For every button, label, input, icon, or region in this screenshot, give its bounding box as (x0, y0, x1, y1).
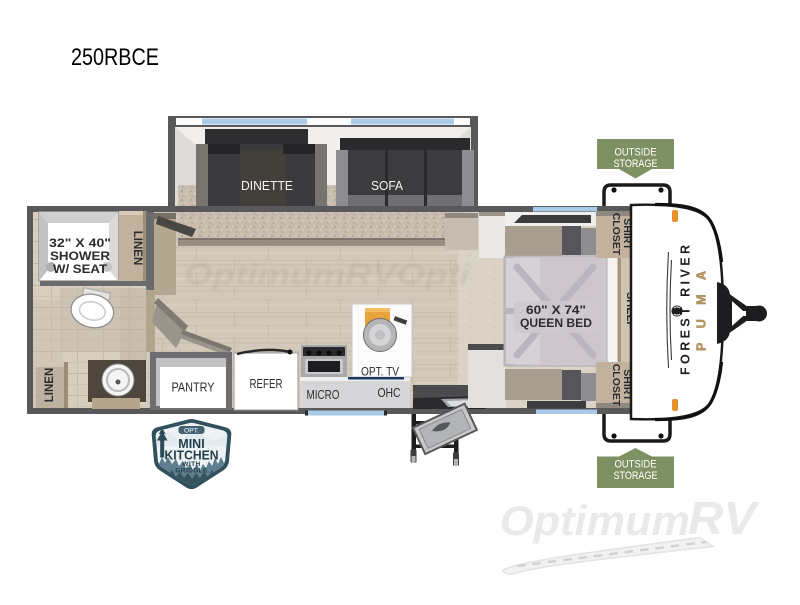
svg-text:STORAGE: STORAGE (614, 158, 658, 170)
svg-text:32" X 40": 32" X 40" (49, 236, 111, 250)
svg-text:DINETTE: DINETTE (241, 178, 293, 193)
svg-text:SHOWER: SHOWER (50, 249, 110, 263)
svg-text:REFER: REFER (250, 377, 283, 391)
svg-text:RV: RV (688, 492, 760, 544)
svg-text:GRIDDLE: GRIDDLE (175, 468, 208, 475)
svg-text:250RBCE: 250RBCE (71, 44, 159, 71)
svg-text:OptimumRVOpti: OptimumRVOpti (184, 259, 471, 291)
svg-text:W/ SEAT: W/ SEAT (53, 262, 108, 276)
svg-text:OUTSIDE: OUTSIDE (615, 147, 657, 159)
svg-text:SOFA: SOFA (371, 178, 403, 193)
svg-text:LINEN: LINEN (44, 368, 56, 403)
svg-text:OPT.: OPT. (184, 428, 199, 435)
svg-text:FOREST RIVER: FOREST RIVER (679, 245, 693, 375)
svg-text:STORAGE: STORAGE (614, 470, 658, 482)
svg-text:LINEN: LINEN (131, 231, 143, 266)
svg-text:PANTRY: PANTRY (172, 381, 216, 395)
svg-text:60" X 74": 60" X 74" (526, 303, 586, 317)
svg-text:OPT. TV: OPT. TV (361, 365, 399, 379)
svg-text:Optimum: Optimum (500, 497, 690, 544)
svg-text:CLOSET: CLOSET (610, 364, 622, 407)
svg-text:MICRO: MICRO (307, 388, 340, 402)
svg-text:OUTSIDE: OUTSIDE (615, 459, 657, 471)
svg-text:QUEEN BED: QUEEN BED (520, 316, 592, 330)
svg-text:OHC: OHC (378, 386, 401, 400)
svg-text:CLOSET: CLOSET (610, 213, 622, 256)
